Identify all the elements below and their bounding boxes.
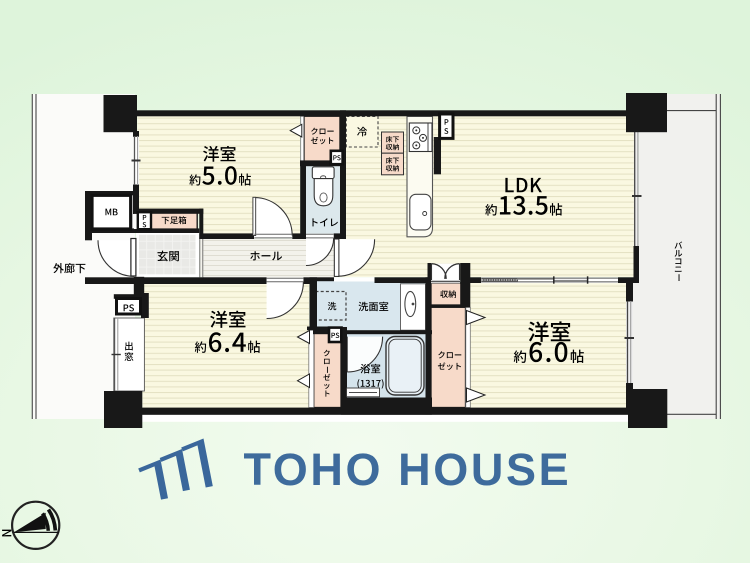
- svg-text:TOHO HOUSE: TOHO HOUSE: [244, 444, 572, 495]
